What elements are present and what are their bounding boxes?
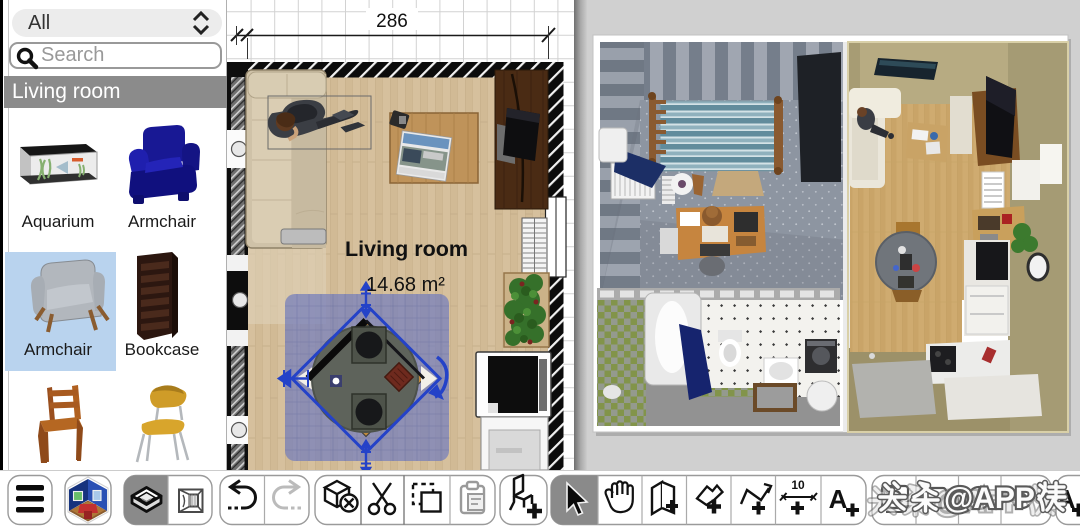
svg-text:14.68 m²: 14.68 m²: [366, 274, 445, 296]
svg-text:286: 286: [376, 11, 408, 32]
svg-text:Living room: Living room: [345, 237, 468, 261]
svg-text:@APP: @APP: [944, 482, 1035, 515]
